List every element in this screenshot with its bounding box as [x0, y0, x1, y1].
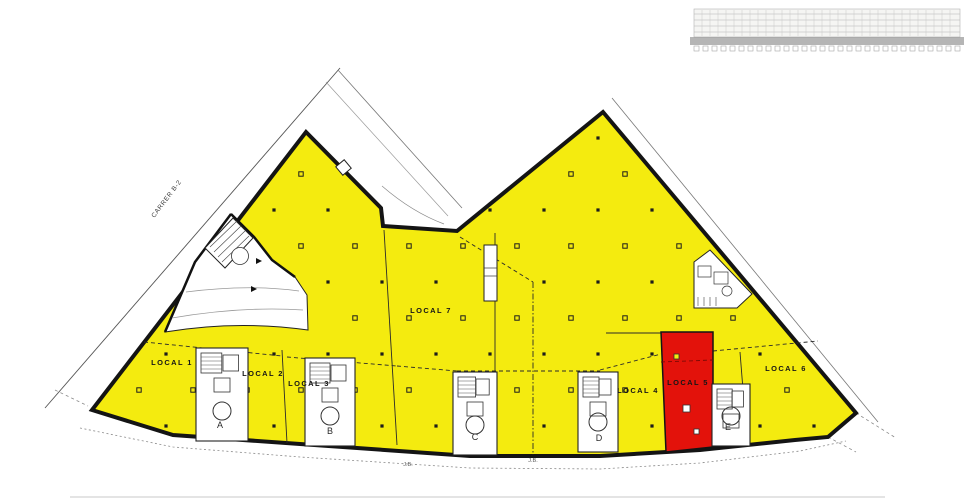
local-2-label: LOCAL 2 [242, 369, 284, 378]
dimension-label-1: J.B. [403, 462, 413, 468]
local-1-label: LOCAL 1 [151, 358, 193, 367]
stair-core [712, 384, 750, 446]
service-shaft [484, 245, 497, 301]
core-e-letter: E [725, 422, 731, 432]
core-c-letter: C [472, 432, 479, 442]
core-b-letter: B [327, 426, 333, 436]
local-7-label: LOCAL 7 [410, 306, 452, 315]
local-3-label: LOCAL 3 [288, 379, 330, 388]
building-elevation-thumbnail [690, 9, 964, 51]
floor-plan-canvas: CARRER B-2 [0, 0, 968, 503]
local-6-label: LOCAL 6 [765, 364, 807, 373]
scanned-floor-plan-page: CARRER B-2 [0, 0, 968, 503]
core-a-letter: A [217, 420, 223, 430]
core-d-letter: D [596, 433, 603, 443]
dimension-label-2: J.B. [528, 458, 538, 464]
street-label: CARRER B-2 [150, 179, 183, 219]
local-4-label: LOCAL 4 [617, 386, 659, 395]
local-5-highlight [661, 332, 713, 452]
local-5-label: LOCAL 5 [667, 378, 709, 387]
stair-core [453, 372, 497, 455]
